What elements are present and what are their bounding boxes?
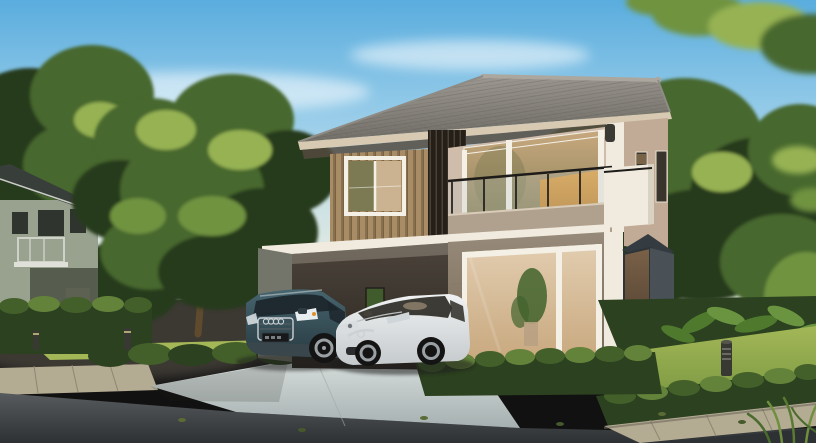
bollard-light-right [721, 340, 732, 376]
house-render [0, 0, 816, 443]
kerb-pavers-left [0, 364, 158, 395]
corner-parapet-shade [648, 164, 654, 224]
sedan-mirror [364, 311, 372, 316]
ground-glass-doors [462, 244, 602, 362]
sedan-front-wheel [355, 340, 381, 366]
sedan-rear-wheel [417, 337, 445, 365]
upper-wood-window [346, 158, 404, 214]
wall-lamp [605, 124, 615, 142]
bollard-light-left-1 [33, 330, 39, 350]
corner-parapet-white [604, 164, 654, 228]
suv-license-plate [262, 333, 289, 342]
sedan-interior [403, 302, 427, 310]
suv-mirror [298, 308, 307, 314]
suv-front-wheel [309, 333, 339, 363]
bollard-light-left-2 [124, 328, 131, 350]
